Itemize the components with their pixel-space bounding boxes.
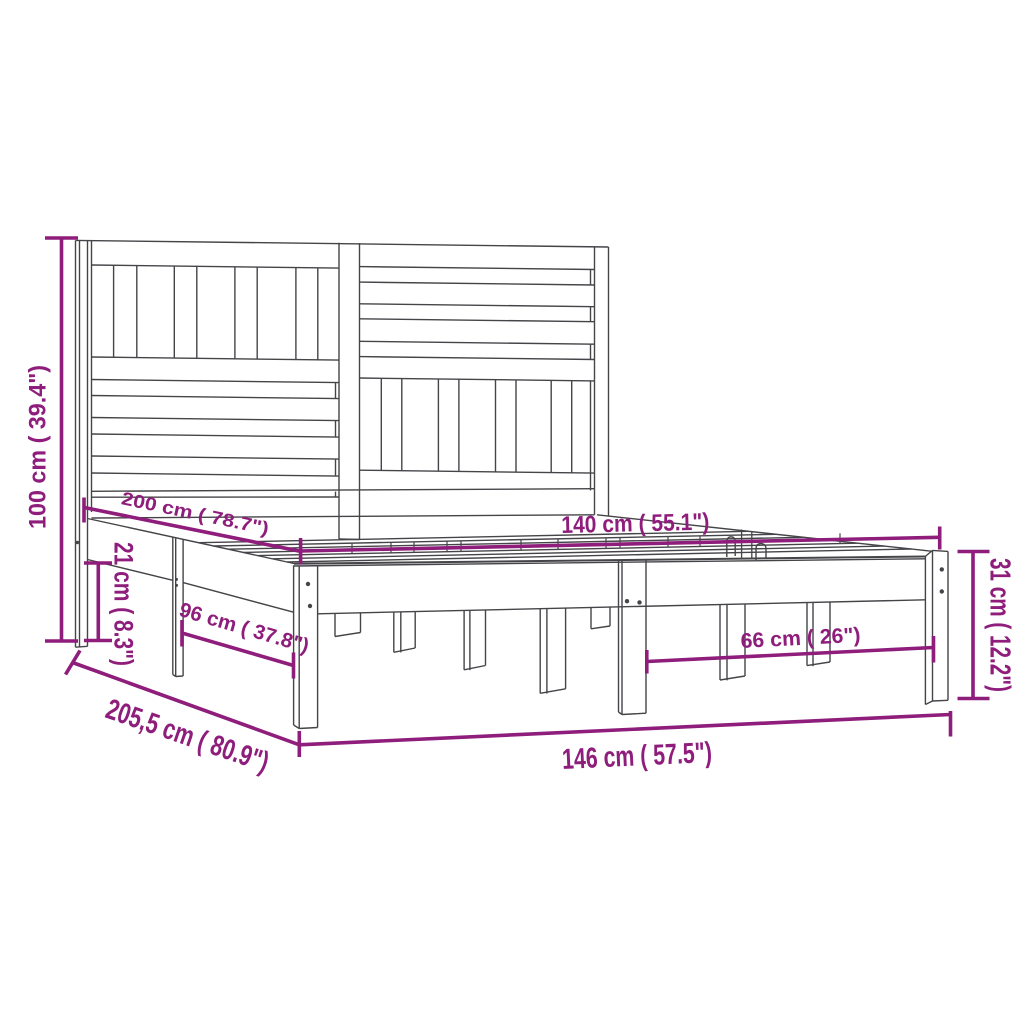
svg-text:31 cm ( 12.2"): 31 cm ( 12.2") — [984, 558, 1016, 692]
svg-text:100 cm ( 39.4"): 100 cm ( 39.4") — [24, 365, 51, 529]
svg-text:140 cm ( 55.1"): 140 cm ( 55.1") — [561, 509, 710, 539]
svg-text:21 cm ( 8.3"): 21 cm ( 8.3") — [109, 542, 139, 666]
